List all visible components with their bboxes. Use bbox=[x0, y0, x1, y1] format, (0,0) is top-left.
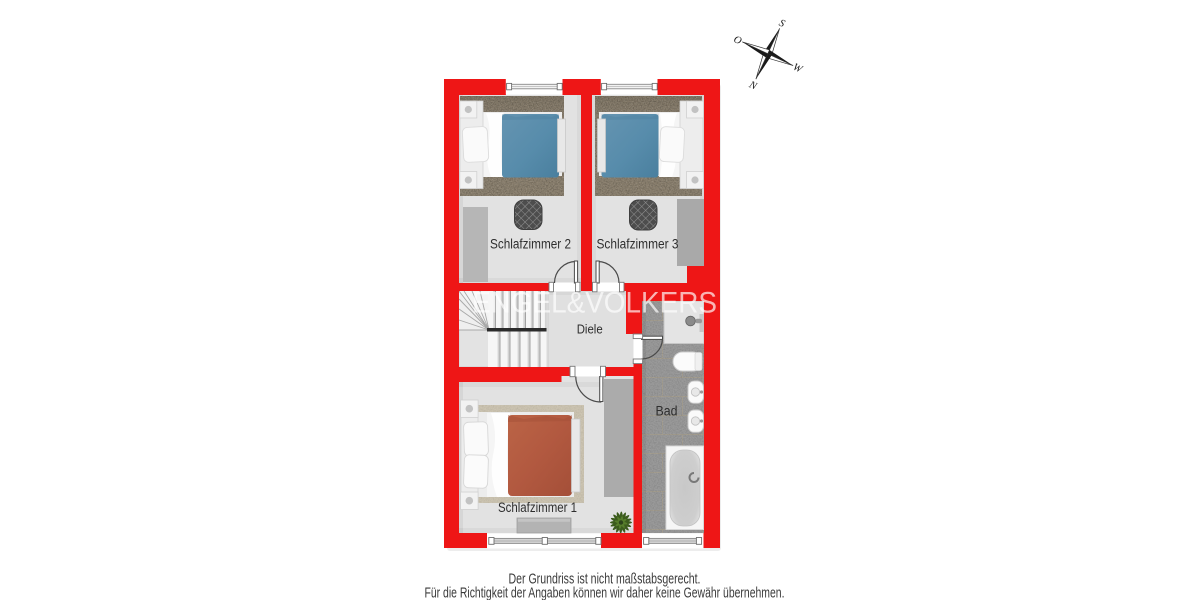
svg-text:Schlafzimmer 1: Schlafzimmer 1 bbox=[498, 500, 577, 515]
svg-text:Für die Richtigkeit der Angabe: Für die Richtigkeit der Angaben können w… bbox=[425, 586, 785, 600]
svg-text:Bad: Bad bbox=[656, 404, 678, 419]
svg-text:Schlafzimmer 3: Schlafzimmer 3 bbox=[597, 237, 679, 252]
svg-text:ENGEL&VÖLKERS: ENGEL&VÖLKERS bbox=[472, 287, 717, 320]
svg-text:Schlafzimmer 2: Schlafzimmer 2 bbox=[490, 237, 571, 252]
svg-text:Diele: Diele bbox=[577, 322, 603, 337]
